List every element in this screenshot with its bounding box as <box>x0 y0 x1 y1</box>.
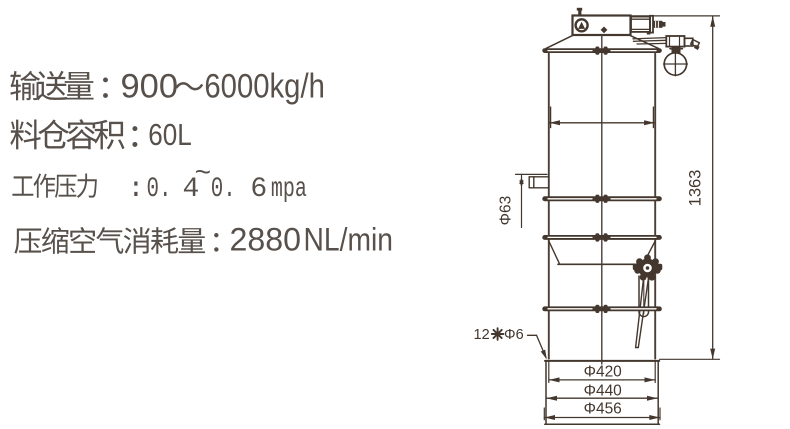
svg-text:Φ63: Φ63 <box>498 196 515 226</box>
svg-text:mpa: mpa <box>271 174 307 205</box>
svg-text:900: 900 <box>121 68 179 106</box>
svg-text:~: ~ <box>195 159 212 190</box>
svg-text:Φ440: Φ440 <box>584 383 623 400</box>
svg-text:0.: 0. <box>211 174 236 205</box>
svg-text:6: 6 <box>250 174 267 205</box>
svg-text:12: 12 <box>474 327 490 343</box>
svg-text::: : <box>128 174 145 205</box>
svg-text:6000kg/h: 6000kg/h <box>204 68 325 106</box>
svg-text:1363: 1363 <box>686 170 704 207</box>
svg-text:Φ420: Φ420 <box>584 363 623 380</box>
svg-text:60L: 60L <box>148 117 192 152</box>
svg-text:0.: 0. <box>147 174 172 205</box>
svg-text:2880: 2880 <box>230 221 302 257</box>
svg-text:Φ6: Φ6 <box>504 327 524 343</box>
svg-text:Φ456: Φ456 <box>584 401 622 418</box>
svg-text:NL/min: NL/min <box>304 221 394 257</box>
